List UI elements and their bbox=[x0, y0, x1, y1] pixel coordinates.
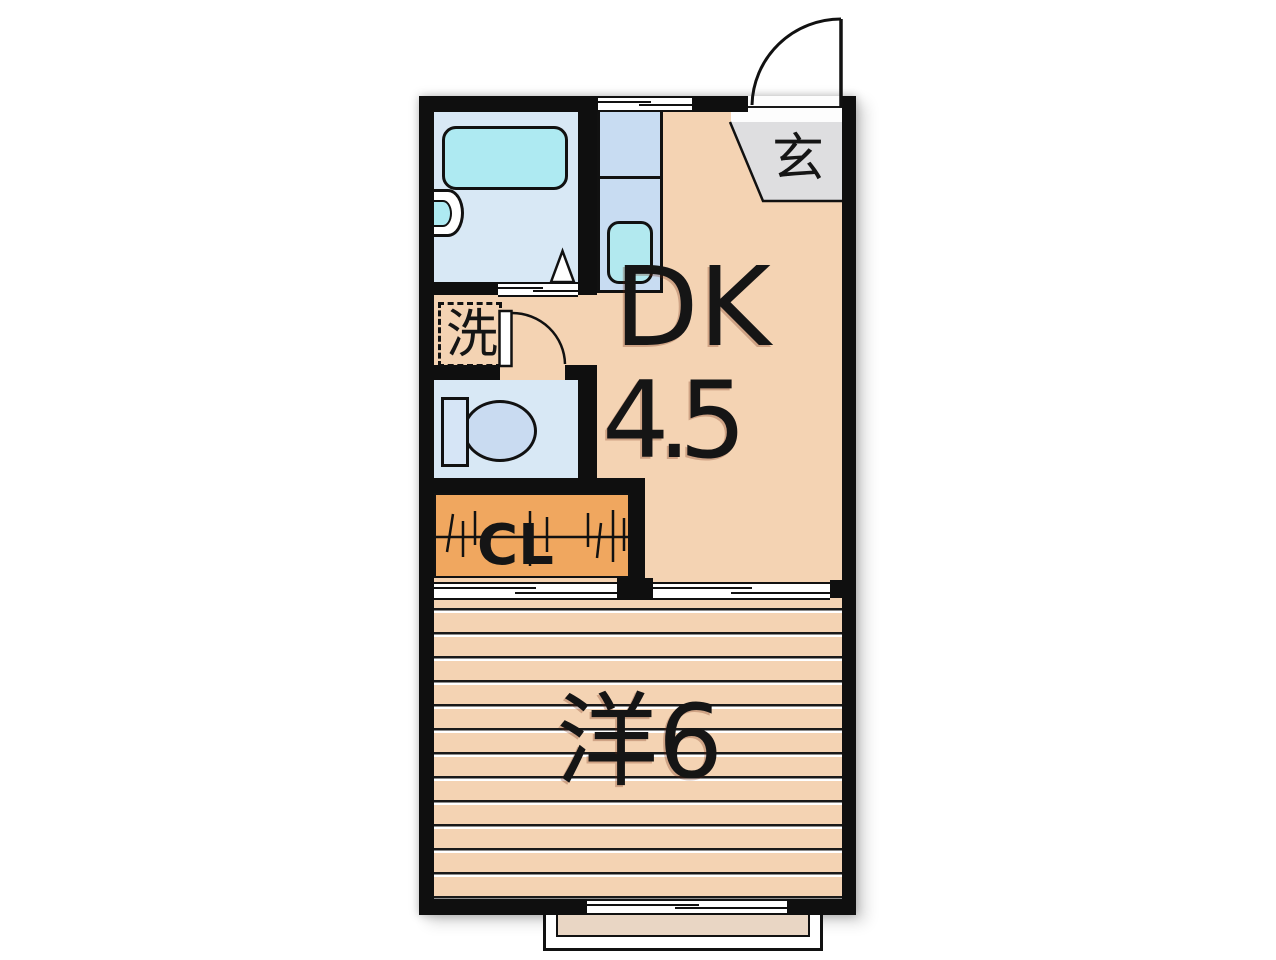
closet-label: CL bbox=[477, 518, 554, 574]
entrance-door-arc bbox=[752, 19, 841, 105]
western-room-label: 洋6 bbox=[556, 692, 723, 794]
shower-symbol bbox=[551, 251, 574, 282]
toilet-door-leaf bbox=[500, 311, 512, 366]
floor-plan: DK 4.5 洋6 玄 洗 CL bbox=[0, 0, 1276, 960]
dk-label: DK bbox=[614, 252, 771, 362]
toilet-door-arc bbox=[512, 313, 565, 364]
laundry-label: 洗 bbox=[446, 309, 498, 361]
entrance-label: 玄 bbox=[772, 133, 824, 185]
dk-size-label: 4.5 bbox=[602, 368, 735, 474]
